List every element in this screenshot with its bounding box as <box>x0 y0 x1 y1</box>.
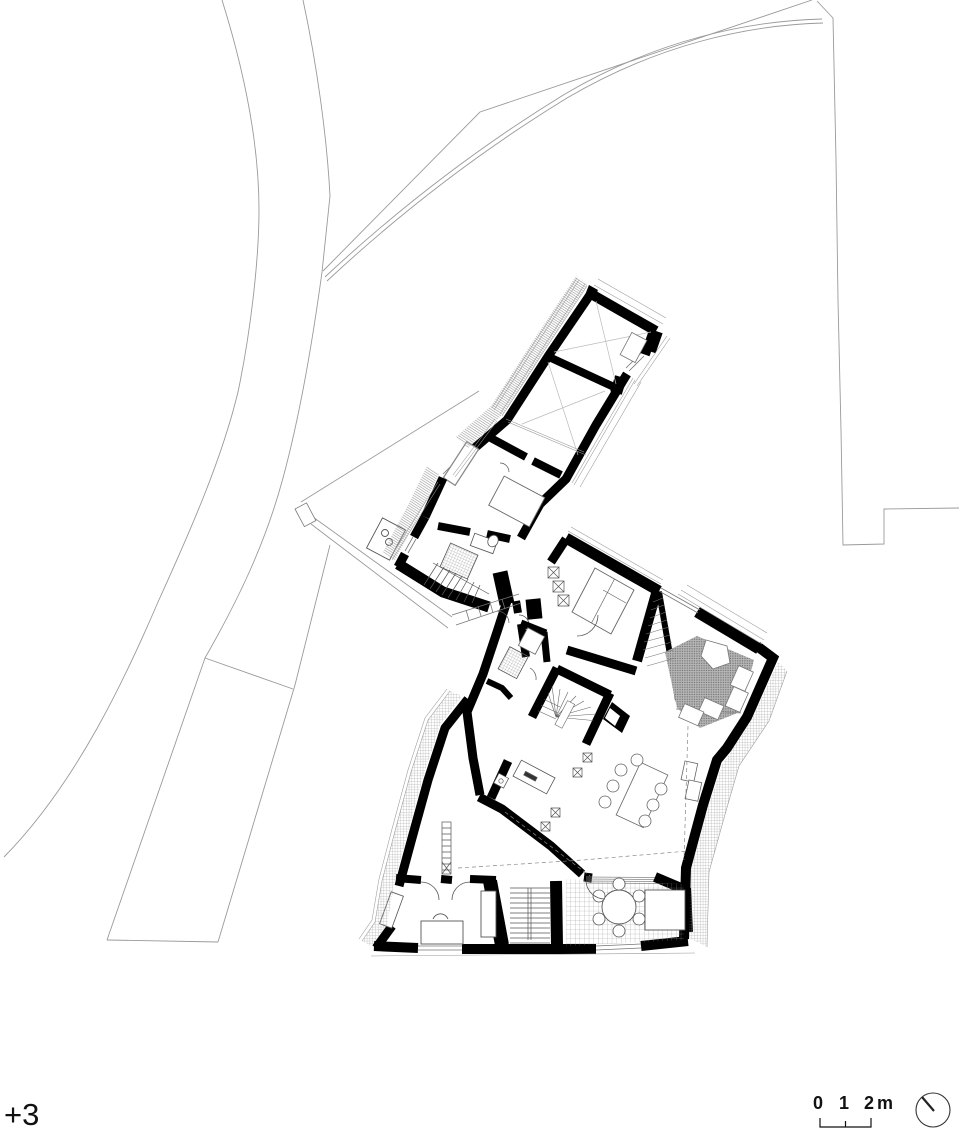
svg-text:2: 2 <box>864 1093 874 1113</box>
svg-text:m: m <box>877 1093 893 1113</box>
svg-text:0: 0 <box>813 1093 823 1113</box>
svg-text:1: 1 <box>839 1093 849 1113</box>
svg-text:+3: +3 <box>4 1097 39 1132</box>
